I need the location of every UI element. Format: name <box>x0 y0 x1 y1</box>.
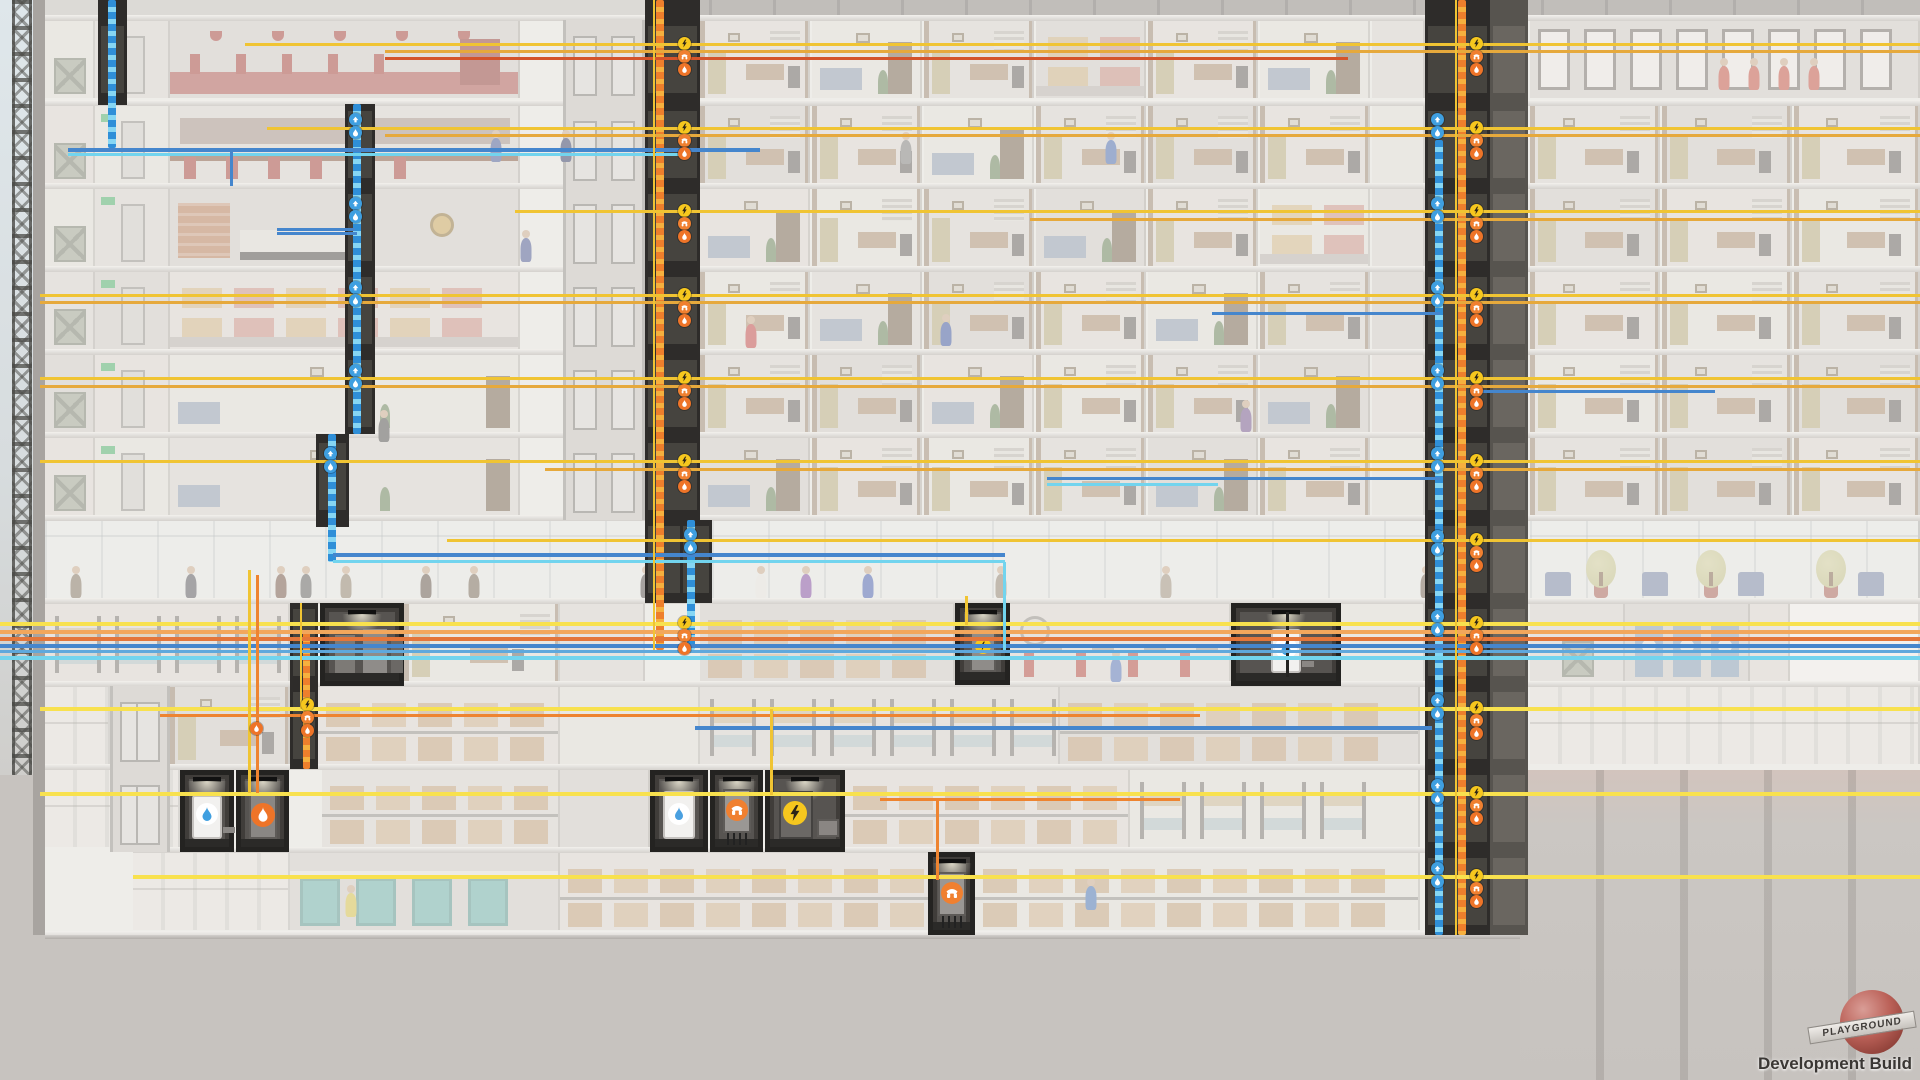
utility-icon-up[interactable] <box>1431 447 1444 460</box>
utility-icon-flame[interactable] <box>678 230 691 243</box>
machine-room-floor <box>185 839 229 847</box>
utility-line-h <box>160 714 1200 717</box>
utility-icon-bolt[interactable] <box>1470 701 1483 714</box>
machine-room-floor <box>770 839 840 847</box>
utility-line-h <box>447 539 1920 542</box>
utility-icon-phone[interactable] <box>301 711 314 724</box>
utility-icon-phone[interactable] <box>678 301 691 314</box>
utility-icon-phone[interactable] <box>1470 629 1483 642</box>
development-build-label: Development Build <box>1758 1054 1912 1074</box>
utility-icon-up[interactable] <box>349 197 362 210</box>
utility-icon-phone[interactable] <box>1470 467 1483 480</box>
utility-icon-phone[interactable] <box>1470 134 1483 147</box>
utility-line-v <box>1003 562 1006 650</box>
utility-icon-bolt[interactable] <box>678 288 691 301</box>
machine-icon-drop <box>196 803 218 825</box>
utility-icon-bolt[interactable] <box>1470 37 1483 50</box>
utility-icon-phone[interactable] <box>678 629 691 642</box>
machine-room-phone-switchboard[interactable] <box>710 770 763 852</box>
utility-icon-flame[interactable] <box>1470 480 1483 493</box>
utility-icon-drop[interactable] <box>349 210 362 223</box>
machine-room-gas-boiler[interactable] <box>236 770 289 852</box>
utility-icon-phone[interactable] <box>678 134 691 147</box>
utility-icon-up[interactable] <box>1431 862 1444 875</box>
utility-icon-up[interactable] <box>349 364 362 377</box>
utility-icon-phone[interactable] <box>678 50 691 63</box>
utilities-layer <box>0 0 1920 1080</box>
machine-room-water-pump[interactable] <box>180 770 234 852</box>
utility-line-h <box>133 875 1920 879</box>
machine-icon-flame <box>668 803 690 825</box>
machine-icon-flame <box>251 803 275 827</box>
utility-icon-up[interactable] <box>1431 779 1444 792</box>
utility-icon-bolt[interactable] <box>678 371 691 384</box>
utility-line-h <box>40 294 1920 297</box>
utility-icon-flame[interactable] <box>678 480 691 493</box>
utility-icon-bolt[interactable] <box>678 37 691 50</box>
utility-line-h <box>333 560 1005 563</box>
utility-icon-drop[interactable] <box>349 294 362 307</box>
machine-room-floor <box>241 839 284 847</box>
utility-icon-bolt[interactable] <box>1470 533 1483 546</box>
utility-line-h <box>40 301 1920 304</box>
machine-icon-phone <box>941 882 963 904</box>
cable <box>745 833 747 845</box>
utility-icon-drop[interactable] <box>1431 875 1444 888</box>
utility-icon-drop[interactable] <box>349 377 362 390</box>
utility-icon-bolt[interactable] <box>1470 869 1483 882</box>
utility-icon-phone[interactable] <box>1470 799 1483 812</box>
utility-icon-flame[interactable] <box>1470 642 1483 655</box>
utility-icon-drop[interactable] <box>1431 623 1444 636</box>
utility-icon-bolt[interactable] <box>1470 616 1483 629</box>
utility-line-h <box>880 798 1180 801</box>
pipe <box>223 827 235 833</box>
machine-room-generator[interactable] <box>765 770 845 852</box>
cable <box>960 916 962 928</box>
utility-line-v <box>256 575 259 793</box>
shaft-panel <box>1493 609 1525 676</box>
cable <box>739 833 741 845</box>
utility-icon-phone[interactable] <box>1470 882 1483 895</box>
utility-line-v <box>300 603 302 709</box>
machine-icon-bolt <box>783 801 807 825</box>
utility-icon-flame[interactable] <box>301 724 314 737</box>
shaft-panel <box>1493 194 1525 261</box>
utility-icon-up[interactable] <box>349 281 362 294</box>
utility-line-v <box>965 596 968 625</box>
utility-icon-bolt[interactable] <box>1470 204 1483 217</box>
utility-line-v <box>653 0 655 650</box>
dev-watermark: PLAYGROUND Development Build <box>1714 966 1914 1076</box>
utility-line-v <box>936 799 939 880</box>
utility-line-h <box>1047 483 1218 486</box>
water-riser[interactable] <box>108 0 116 148</box>
machine-room-floor <box>325 673 399 681</box>
utility-icon-phone[interactable] <box>1470 714 1483 727</box>
utility-icon-up[interactable] <box>1431 694 1444 707</box>
utility-icon-flame[interactable] <box>1470 397 1483 410</box>
utility-icon-bolt[interactable] <box>1470 121 1483 134</box>
utility-icon-flame[interactable] <box>678 63 691 76</box>
utility-line-h <box>40 707 1920 711</box>
utility-line-h <box>0 650 1920 653</box>
shaft-panel <box>1493 775 1525 842</box>
utility-line-h <box>40 385 1920 388</box>
shaft-panel <box>1493 443 1525 510</box>
machine-room-floor <box>933 922 970 930</box>
utility-icon-flame[interactable] <box>678 642 691 655</box>
utility-line-h <box>40 377 1920 380</box>
utility-icon-drop[interactable] <box>1431 792 1444 805</box>
cable <box>942 916 944 928</box>
utility-line-v <box>248 570 251 793</box>
utility-line-h <box>385 50 1920 53</box>
utility-line-h <box>1047 477 1440 480</box>
utility-icon-bolt[interactable] <box>1470 371 1483 384</box>
utility-icon-flame[interactable] <box>678 147 691 160</box>
utility-icon-drop[interactable] <box>1431 210 1444 223</box>
utility-line-h <box>40 460 1920 463</box>
utility-line-h <box>0 644 1920 648</box>
shaft-panel <box>1493 26 1525 93</box>
utility-line-v <box>230 150 233 186</box>
utility-icon-flame[interactable] <box>1470 812 1483 825</box>
utility-line-h <box>277 232 357 235</box>
utility-line-h <box>515 210 1920 213</box>
utility-line-h <box>277 228 355 231</box>
utility-line-h <box>385 57 1348 60</box>
utility-icon-flame[interactable] <box>1470 63 1483 76</box>
cable <box>954 916 956 928</box>
utility-icon-drop[interactable] <box>324 460 337 473</box>
utility-line-h <box>545 468 1920 471</box>
utility-icon-drop[interactable] <box>1431 707 1444 720</box>
utility-icon-flame[interactable] <box>678 397 691 410</box>
utility-icon-bolt[interactable] <box>678 616 691 629</box>
utility-icon-up[interactable] <box>324 447 337 460</box>
utility-icon-up[interactable] <box>1431 281 1444 294</box>
utility-icon-phone[interactable] <box>678 384 691 397</box>
shaft-panel <box>1493 526 1525 593</box>
pipe <box>1302 661 1314 667</box>
utility-icon-flame[interactable] <box>1470 230 1483 243</box>
machine-room-floor <box>655 839 703 847</box>
utility-icon-up[interactable] <box>1431 113 1444 126</box>
utility-icon-drop[interactable] <box>349 126 362 139</box>
utility-line-h <box>385 134 1920 137</box>
cable <box>727 833 729 845</box>
utility-line-h <box>0 656 1920 660</box>
utility-icon-drop[interactable] <box>1431 377 1444 390</box>
utility-icon-bolt[interactable] <box>678 204 691 217</box>
utility-icon-drop[interactable] <box>1431 126 1444 139</box>
gen-motor <box>817 819 839 837</box>
utility-icon-phone[interactable] <box>678 217 691 230</box>
utility-icon-up[interactable] <box>1431 610 1444 623</box>
utility-icon-flame[interactable] <box>1470 147 1483 160</box>
utility-icon-flame[interactable] <box>1470 727 1483 740</box>
shaft-panel <box>1493 111 1525 178</box>
utility-icon-phone[interactable] <box>1470 301 1483 314</box>
utility-icon-up[interactable] <box>349 113 362 126</box>
utility-line-h <box>68 153 690 156</box>
utility-icon-flame[interactable] <box>1470 314 1483 327</box>
game-viewport[interactable]: PLAYGROUND Development Build <box>0 0 1920 1080</box>
utility-icon-drop[interactable] <box>684 541 697 554</box>
utility-line-h <box>695 726 1432 730</box>
cable <box>733 833 735 845</box>
utility-icon-phone[interactable] <box>1470 546 1483 559</box>
machine-room-boiler[interactable] <box>650 770 708 852</box>
shaft-panel <box>1493 360 1525 427</box>
utility-icon-flame[interactable] <box>1470 559 1483 572</box>
utility-icon-bolt[interactable] <box>1470 288 1483 301</box>
utility-line-v <box>1455 0 1457 935</box>
utility-icon-bolt[interactable] <box>678 454 691 467</box>
utility-icon-flame[interactable] <box>678 314 691 327</box>
utility-icon-up[interactable] <box>1431 197 1444 210</box>
utility-icon-bolt[interactable] <box>678 121 691 134</box>
utility-icon-flame[interactable] <box>1470 895 1483 908</box>
utility-icon-drop[interactable] <box>1431 460 1444 473</box>
utility-line-h <box>0 630 1920 634</box>
utility-line-h <box>0 622 1920 626</box>
utility-icon-bolt[interactable] <box>1470 454 1483 467</box>
utility-icon-drop[interactable] <box>1431 294 1444 307</box>
utility-line-h <box>1212 312 1440 315</box>
utility-line-h <box>40 792 1920 796</box>
utility-icon-phone[interactable] <box>1470 217 1483 230</box>
shaft-panel <box>1493 277 1525 344</box>
utility-icon-up[interactable] <box>1431 530 1444 543</box>
utility-line-h <box>0 637 1920 641</box>
utility-icon-bolt[interactable] <box>301 698 314 711</box>
shaft-panel <box>1493 858 1525 925</box>
utility-icon-bolt[interactable] <box>1470 786 1483 799</box>
utility-line-v <box>770 709 773 795</box>
utility-icon-phone[interactable] <box>678 467 691 480</box>
shaft-panel <box>1493 692 1525 759</box>
utility-icon-phone[interactable] <box>1470 384 1483 397</box>
utility-icon-up[interactable] <box>1431 364 1444 377</box>
machine-room-floor <box>960 672 1005 680</box>
utility-icon-phone[interactable] <box>1470 50 1483 63</box>
utility-icon-drop[interactable] <box>1431 543 1444 556</box>
utility-line-h <box>333 553 1005 557</box>
utility-line-h <box>245 43 1920 46</box>
utility-line-h <box>68 148 760 152</box>
machine-icon-phone <box>726 799 748 821</box>
cable <box>948 916 950 928</box>
utility-icon-up[interactable] <box>684 528 697 541</box>
utility-icon-flame[interactable] <box>250 722 263 735</box>
machine-room-floor <box>715 839 758 847</box>
utility-line-h <box>1480 390 1715 393</box>
utility-line-h <box>267 127 1920 130</box>
